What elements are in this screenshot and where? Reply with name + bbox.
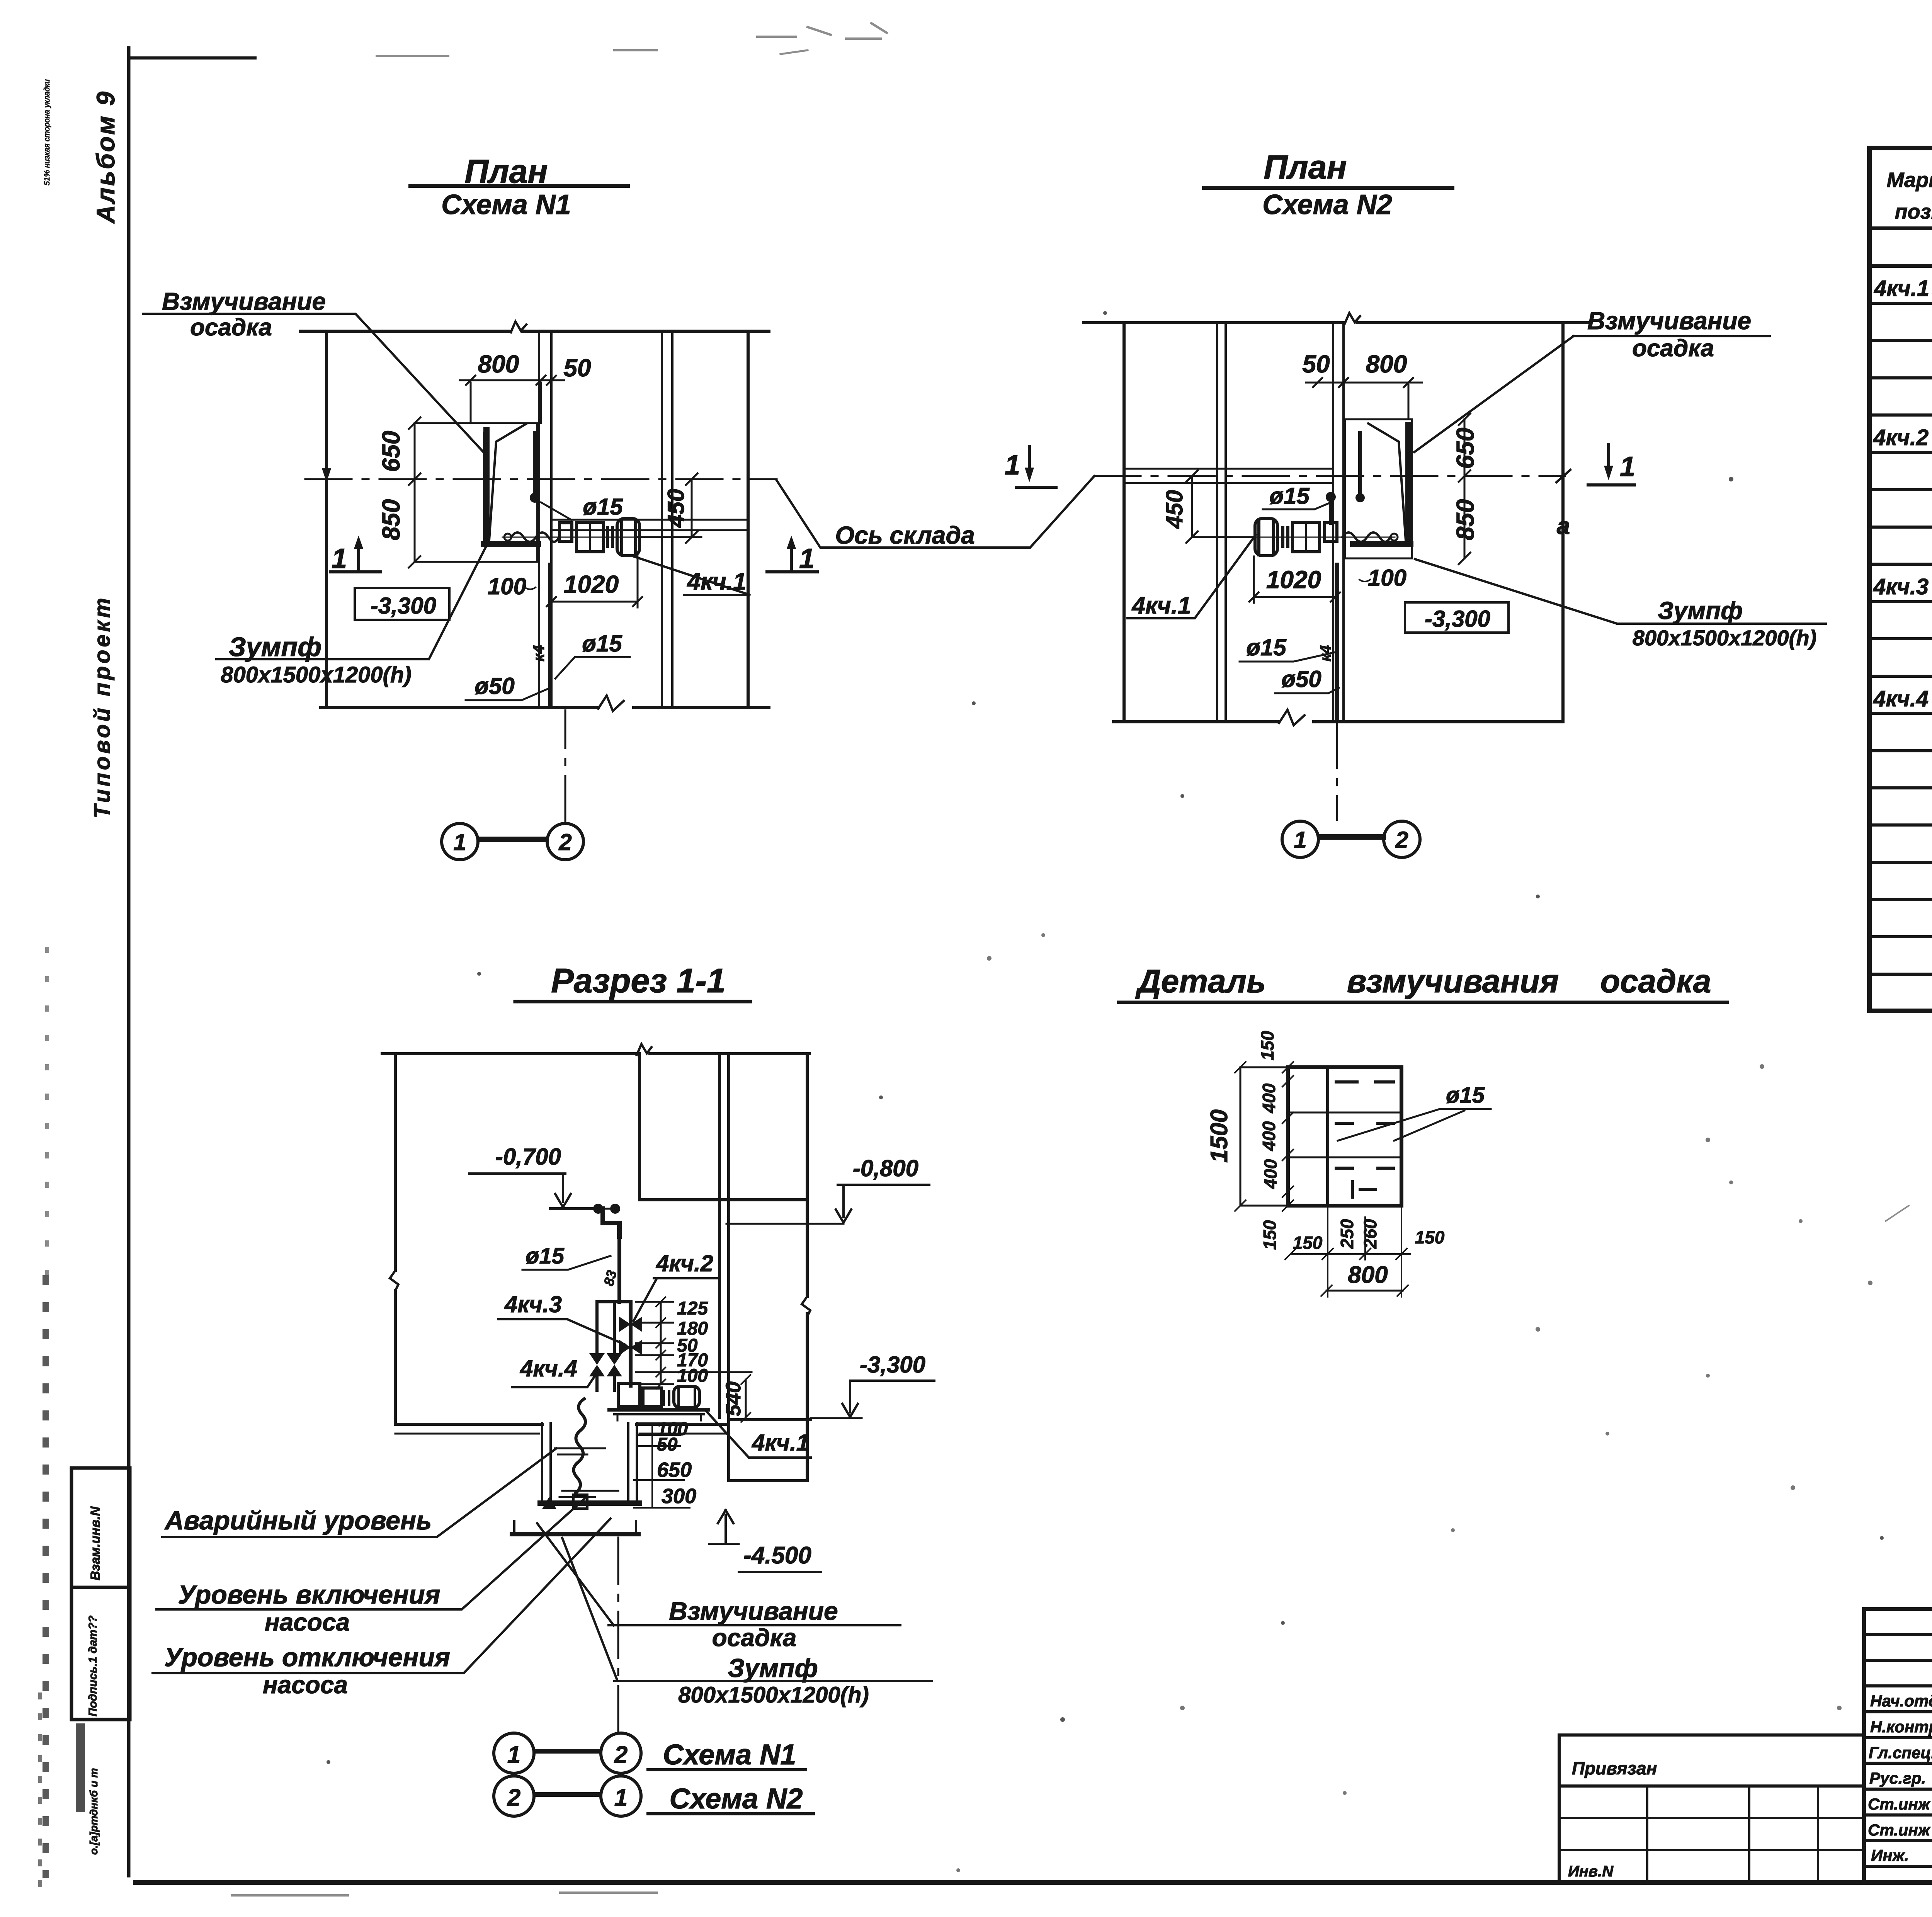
svg-text:Подпись.1 дат??: Подпись.1 дат?? [87,1615,99,1716]
svg-text:450: 450 [1162,490,1187,529]
svg-text:540: 540 [722,1381,745,1416]
svg-text:Зумпф: Зумпф [1658,597,1743,624]
svg-text:-0,700: -0,700 [495,1144,561,1170]
svg-text:4кч.3: 4кч.3 [504,1291,562,1317]
svg-text:насоса: насоса [265,1608,350,1636]
svg-text:800х1500х1200(h): 800х1500х1200(h) [1633,626,1816,650]
svg-text:650: 650 [657,1458,692,1482]
svg-text:2: 2 [1395,827,1408,853]
svg-text:ø15: ø15 [1446,1083,1485,1108]
svg-text:100: 100 [488,573,526,599]
svg-text:осадка: осадка [1632,335,1714,362]
svg-text:1500: 1500 [1206,1109,1233,1163]
svg-text:-0,800: -0,800 [853,1155,918,1181]
svg-text:4кч.4: 4кч.4 [520,1356,577,1381]
svg-text:Взмучивание: Взмучивание [1587,307,1751,335]
svg-text:800х1500х1200(h): 800х1500х1200(h) [221,662,411,687]
svg-text:Разрез 1-1: Разрез 1-1 [551,961,726,1000]
svg-text:650: 650 [377,431,405,472]
svg-text:1: 1 [453,829,466,855]
svg-text:1: 1 [799,543,815,574]
svg-text:800х1500х1200(h): 800х1500х1200(h) [678,1682,869,1708]
svg-text:ø15: ø15 [1269,483,1310,509]
svg-text:800: 800 [478,350,519,378]
svg-text:осадка: осадка [190,314,272,341]
svg-text:260: 260 [1360,1219,1380,1249]
svg-text:2: 2 [558,829,571,855]
svg-text:4кч.2: 4кч.2 [656,1250,713,1276]
svg-text:Схема N1: Схема N1 [441,189,571,220]
svg-text:100: 100 [677,1366,708,1386]
svg-text:300: 300 [662,1485,696,1508]
svg-text:50: 50 [657,1434,678,1455]
svg-text:Марка: Марка [1887,168,1932,192]
svg-text:Аварийный уровень: Аварийный уровень [164,1506,432,1535]
svg-text:650: 650 [1451,428,1479,469]
svg-text:Инж.: Инж. [1871,1846,1909,1864]
svg-text:Схема N1: Схема N1 [663,1738,796,1771]
svg-text:2: 2 [614,1742,628,1768]
svg-text:-4.500: -4.500 [743,1542,811,1569]
svg-text:Зумпф: Зумпф [229,632,321,662]
svg-text:осадка: осадка [712,1624,797,1652]
svg-text:1: 1 [1620,451,1635,482]
svg-text:1020: 1020 [1266,566,1321,594]
svg-text:ø50: ø50 [474,673,514,699]
svg-text:1: 1 [614,1784,628,1811]
svg-text:ø50: ø50 [1281,666,1321,692]
svg-text:250: 250 [1337,1219,1357,1249]
svg-text:1: 1 [507,1742,520,1768]
svg-text:Альбом 9: Альбом 9 [91,90,120,224]
svg-text:Ось склада: Ось склада [835,521,975,549]
svg-text:План: План [1264,149,1347,186]
svg-text:1: 1 [1005,450,1020,481]
svg-text:400: 400 [1260,1159,1281,1189]
svg-text:1020: 1020 [564,570,619,598]
svg-text:Деталь: Деталь [1135,963,1266,999]
svg-text:а: а [1557,513,1570,539]
svg-text:осадка: осадка [1600,963,1711,999]
svg-text:-3,300: -3,300 [371,593,436,619]
svg-text:ø15: ø15 [1246,634,1287,660]
svg-text:4кч.1: 4кч.1 [752,1430,809,1456]
svg-text:4кч.2: 4кч.2 [1873,425,1929,450]
svg-text:1: 1 [332,543,347,574]
svg-text:поз.: поз. [1895,200,1932,223]
svg-text:взмучивания: взмучивания [1347,963,1559,999]
svg-text:насоса: насоса [263,1671,348,1699]
svg-text:Ст.инж: Ст.инж [1868,1795,1931,1813]
svg-text:ø15: ø15 [582,631,622,657]
svg-text:ø15: ø15 [526,1243,565,1269]
svg-text:Типовой проект: Типовой проект [90,595,115,818]
svg-text:1: 1 [1294,827,1306,853]
svg-text:450: 450 [663,489,689,528]
svg-text:150: 150 [1260,1220,1280,1250]
svg-text:100: 100 [1368,565,1406,591]
svg-text:150: 150 [1415,1227,1445,1247]
svg-text:2: 2 [507,1784,520,1811]
svg-text:50: 50 [1302,350,1330,378]
svg-text:125: 125 [677,1298,708,1319]
svg-text:Привязан: Привязан [1572,1758,1657,1778]
svg-text:850: 850 [1451,499,1479,541]
svg-text:850: 850 [377,499,405,541]
svg-text:Нач.отд.: Нач.отд. [1870,1692,1932,1710]
svg-text:Взмучивание: Взмучивание [669,1597,838,1625]
svg-text:50: 50 [563,354,591,382]
svg-text:Схема N2: Схема N2 [670,1783,803,1815]
svg-text:150: 150 [1293,1233,1323,1253]
svg-text:Уровень включения: Уровень включения [178,1580,440,1609]
svg-text:150: 150 [1257,1031,1277,1060]
svg-text:Схема N2: Схема N2 [1262,189,1392,220]
svg-text:Взам.инв.N: Взам.инв.N [88,1506,103,1580]
svg-text:Инв.N: Инв.N [1568,1863,1614,1880]
svg-text:о.[а]ртднкб и т: о.[а]ртднкб и т [88,1768,100,1855]
svg-text:Гл.спец.: Гл.спец. [1869,1744,1932,1762]
svg-text:ø15: ø15 [583,494,623,520]
svg-text:Рус.гр.: Рус.гр. [1869,1769,1926,1787]
svg-text:4кч.1: 4кч.1 [1874,276,1929,301]
svg-text:Взмучивание: Взмучивание [162,287,326,315]
svg-text:-3,300: -3,300 [1425,606,1490,632]
svg-text:Ст.инж: Ст.инж [1868,1821,1931,1839]
svg-text:к4: к4 [1317,645,1334,662]
svg-text:51% низкая сторона укладки: 51% низкая сторона укладки [43,79,51,185]
svg-text:к4: к4 [531,645,548,662]
svg-text:800: 800 [1348,1262,1388,1288]
svg-text:Зумпф: Зумпф [728,1653,818,1683]
svg-text:4кч.1: 4кч.1 [1131,592,1191,619]
svg-text:4кч.4: 4кч.4 [1873,686,1929,711]
svg-text:Уровень отключения: Уровень отключения [164,1643,450,1672]
svg-text:800: 800 [1366,350,1407,378]
svg-text:-3,300: -3,300 [860,1352,925,1378]
svg-text:Н.контр.: Н.контр. [1870,1718,1932,1736]
svg-text:400: 400 [1259,1121,1279,1151]
svg-text:400: 400 [1259,1083,1279,1113]
svg-text:4кч.3: 4кч.3 [1873,574,1929,599]
